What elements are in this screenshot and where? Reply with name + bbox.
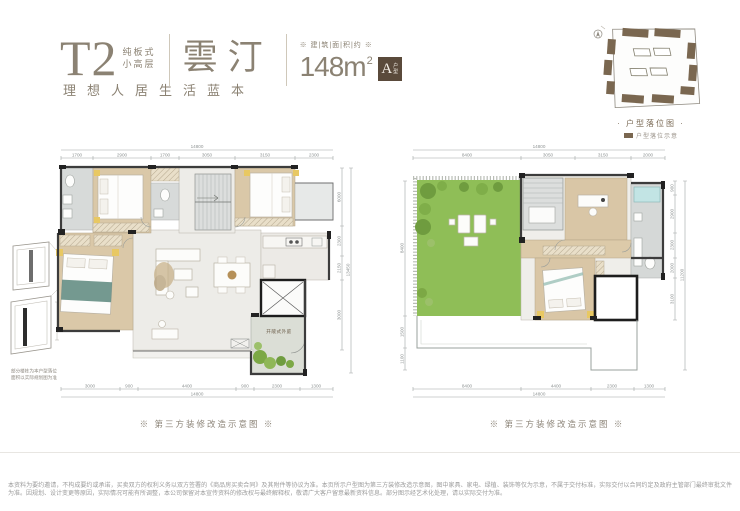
wardrobe bbox=[93, 223, 149, 232]
master-bed bbox=[60, 254, 113, 315]
floorplan-right-drawing: 14800 8400 3050 3150 2000 8400 4400 2300… bbox=[398, 143, 716, 415]
siteplan-caption: · 户型落位图 · bbox=[588, 118, 714, 129]
dim-label: 4400 bbox=[551, 384, 562, 389]
dim-label: 1300 bbox=[311, 384, 322, 389]
stool bbox=[166, 291, 174, 299]
area-superscript: 2 bbox=[367, 56, 373, 67]
dim-label: 1700 bbox=[72, 153, 83, 158]
dim-label: 2300 bbox=[670, 239, 675, 250]
dim-label: 2300 bbox=[272, 384, 283, 389]
dim-label: 1300 bbox=[644, 384, 655, 389]
balcony-floor bbox=[295, 183, 333, 220]
dim-label: 3050 bbox=[202, 153, 213, 158]
wardrobe bbox=[60, 235, 90, 246]
closet bbox=[151, 168, 179, 181]
product-type-line1: 纯板式 bbox=[123, 46, 156, 58]
bedroom1-bed bbox=[94, 170, 143, 223]
dim-label: 13450 bbox=[346, 263, 351, 276]
floorplan-garden-level: 14800 8400 3050 3150 2000 8400 4400 2300… bbox=[398, 143, 716, 415]
siteplan-legend: 户型落位示意 bbox=[588, 131, 714, 140]
dim-label: 8400 bbox=[462, 153, 473, 158]
header-divider bbox=[286, 34, 287, 86]
north-arrow-icon bbox=[594, 26, 605, 38]
staircase bbox=[195, 174, 231, 230]
brand-slogan: 理想人居生活蓝本 bbox=[63, 80, 255, 99]
wardrobe bbox=[94, 235, 122, 246]
dim-label: 3000 bbox=[337, 309, 342, 320]
unit-type-letter: A bbox=[381, 62, 392, 77]
estate-name: 雲汀 bbox=[183, 34, 273, 82]
courtyard-label: 开敞式外庭 bbox=[266, 328, 291, 335]
dim-label: 3150 bbox=[260, 153, 271, 158]
header-divider bbox=[169, 34, 170, 86]
void-shaft bbox=[595, 276, 637, 320]
dim-label: 2900 bbox=[117, 153, 128, 158]
siteplan-block: · 户型落位图 · 户型落位示意 bbox=[588, 20, 714, 140]
dim-label: 8400 bbox=[400, 242, 405, 253]
nightstand bbox=[112, 249, 119, 256]
staircase bbox=[523, 178, 563, 230]
area-value: 148m bbox=[300, 53, 366, 81]
garden-lawn bbox=[417, 180, 521, 316]
dim-label: 11200 bbox=[680, 268, 685, 281]
dim-label: 3000 bbox=[85, 384, 96, 389]
dim-label: 1700 bbox=[160, 153, 171, 158]
dim-label: 2300 bbox=[309, 153, 320, 158]
dim-label: 14800 bbox=[191, 144, 204, 149]
dim-label: 2300 bbox=[337, 235, 342, 246]
dim-label: 14800 bbox=[191, 392, 204, 397]
elevator bbox=[261, 280, 305, 316]
dim-label: 4400 bbox=[182, 384, 193, 389]
dim-label: 3100 bbox=[670, 293, 675, 304]
product-type-labels: 纯板式 小高层 bbox=[123, 46, 156, 70]
unit-type-sub2: 型 bbox=[393, 69, 398, 75]
bedroom2-bed bbox=[244, 170, 299, 217]
legal-disclaimer: 本资料为要约邀请，不构成要约或承诺，买卖双方的权利义务以双方签署的《商品房买卖合… bbox=[8, 482, 732, 498]
terrace-inner-line bbox=[421, 320, 587, 344]
dim-label: 2000 bbox=[670, 262, 675, 273]
legend-label: 户型落位示意 bbox=[636, 131, 678, 140]
dim-label: 1100 bbox=[400, 354, 405, 364]
dim-label: 2150 bbox=[337, 262, 342, 273]
footer-divider bbox=[0, 452, 740, 453]
area-label: ※ 建|筑|面|积|约 ※ bbox=[300, 40, 402, 50]
bedroom-bed bbox=[543, 268, 586, 313]
floorplan-left-drawing: 14800 1700 2900 1700 3050 3150 2300 3000… bbox=[48, 143, 366, 415]
dim-label: 8400 bbox=[462, 384, 473, 389]
dim-label: 900 bbox=[125, 384, 133, 389]
brand-header: T2 纯板式 小高层 雲汀 ※ 建|筑|面|积|约 ※ 148m 2 A 户 型 bbox=[60, 34, 402, 86]
siteplan-map bbox=[588, 20, 714, 116]
dim-label: 6000 bbox=[337, 191, 342, 202]
unit-type-badge: A 户 型 bbox=[378, 57, 402, 81]
product-code: T2 bbox=[60, 34, 118, 82]
dim-label: 3050 bbox=[543, 153, 554, 158]
dim-label: 2300 bbox=[607, 384, 618, 389]
dim-label: 2000 bbox=[643, 153, 654, 158]
legend-swatch bbox=[624, 133, 633, 138]
terrace-outline bbox=[417, 316, 637, 370]
area-block: ※ 建|筑|面|积|约 ※ 148m 2 A 户 型 bbox=[300, 40, 402, 81]
dim-label: 3150 bbox=[598, 153, 609, 158]
dim-label: 900 bbox=[241, 384, 249, 389]
wardrobe bbox=[543, 246, 605, 255]
dim-label: 14800 bbox=[533, 144, 546, 149]
dim-label: 900 bbox=[670, 184, 675, 192]
dim-label: 2900 bbox=[670, 208, 675, 219]
dim-label: 1500 bbox=[400, 326, 405, 337]
floor-mat bbox=[231, 339, 249, 348]
product-type-line2: 小高层 bbox=[123, 58, 156, 70]
floorplan-right-caption: ※ 第三方装修改造示意图 ※ bbox=[398, 418, 716, 430]
dim-label: 14800 bbox=[533, 392, 546, 397]
floorplan-left-caption: ※ 第三方装修改造示意图 ※ bbox=[48, 418, 366, 430]
floorplan-main-level: 14800 1700 2900 1700 3050 3150 2300 3000… bbox=[48, 143, 366, 415]
